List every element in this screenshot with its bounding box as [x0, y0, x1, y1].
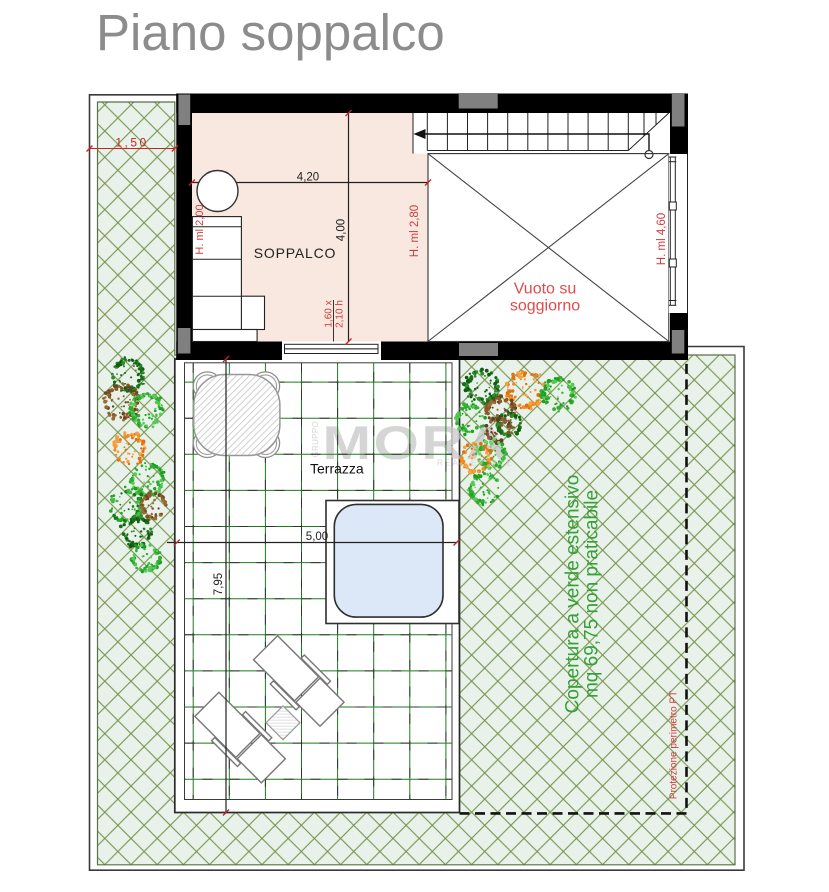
svg-text:SOPPALCO: SOPPALCO [254, 245, 336, 261]
svg-text:Piano soppalco: Piano soppalco [96, 4, 445, 61]
svg-text:1,50: 1,50 [115, 136, 148, 150]
svg-text:soggiorno: soggiorno [510, 298, 580, 315]
svg-text:Protezione perimetro PT: Protezione perimetro PT [669, 691, 680, 799]
svg-text:H. ml 2,80: H. ml 2,80 [409, 205, 421, 257]
svg-text:1,60 x: 1,60 x [324, 300, 335, 327]
svg-text:mq 69,75 non praticabile: mq 69,75 non praticabile [582, 490, 603, 698]
svg-text:2,10 h: 2,10 h [335, 300, 346, 328]
svg-text:Copertura a verde estensivo: Copertura a verde estensivo [563, 475, 584, 714]
svg-text:7,95: 7,95 [213, 573, 225, 595]
svg-text:GRUPPO: GRUPPO [311, 421, 320, 457]
svg-text:H. ml 2,00: H. ml 2,00 [194, 204, 206, 254]
svg-text:Vuoto su: Vuoto su [514, 281, 577, 298]
svg-text:Terrazza: Terrazza [310, 461, 364, 477]
svg-text:4,00: 4,00 [336, 219, 348, 241]
svg-text:H. ml 4,60: H. ml 4,60 [656, 213, 668, 265]
svg-text:4,20: 4,20 [297, 172, 319, 184]
svg-text:5,00: 5,00 [306, 531, 328, 543]
